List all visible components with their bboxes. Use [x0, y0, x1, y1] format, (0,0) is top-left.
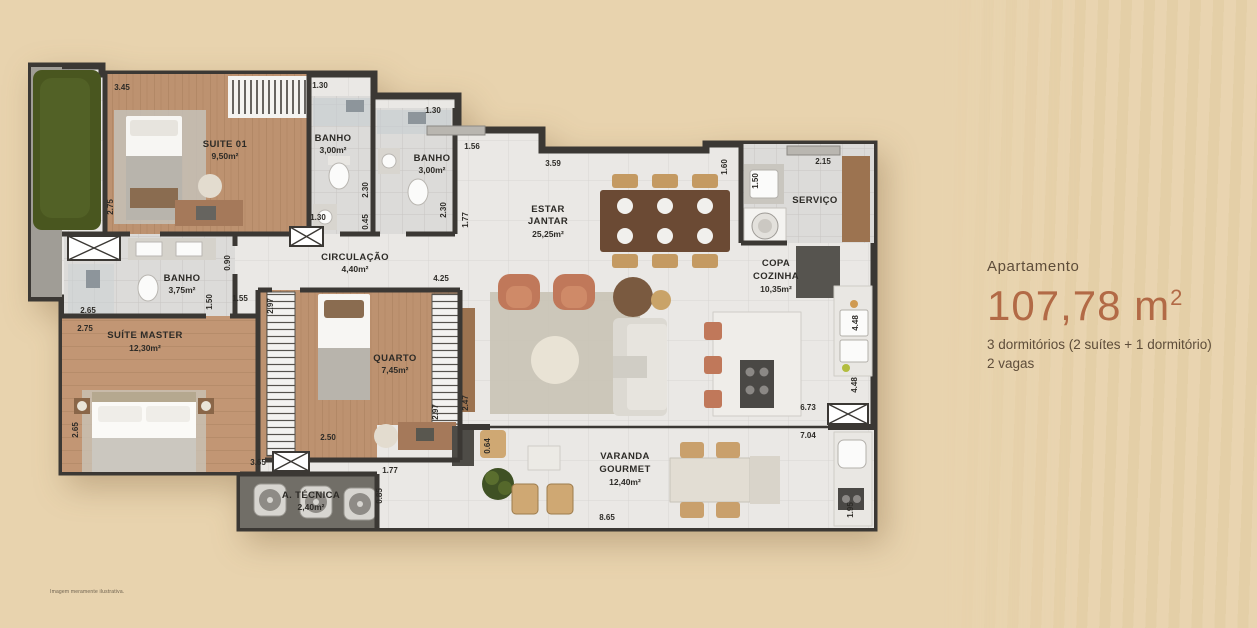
dim: 4.48 [851, 315, 860, 331]
dim: 2.15 [815, 157, 831, 166]
label-varanda-area: 12,40m² [609, 477, 641, 487]
detail-vagas: 2 vagas [987, 354, 1212, 373]
dim: 4.25 [433, 274, 449, 283]
dim: 1.56 [464, 142, 480, 151]
label-atecnica: A. TÉCNICA [282, 490, 340, 501]
label-quarto: QUARTO [373, 353, 416, 364]
suite-master-furniture [74, 390, 214, 472]
label-circulacao: CIRCULAÇÃO [321, 252, 389, 263]
label-banho1: BANHO [315, 133, 352, 144]
label-copa-area: 10,35m² [760, 284, 792, 294]
label-banho-master-area: 3,75m² [169, 285, 196, 295]
shaft-box [68, 236, 120, 260]
label-copa-2: COZINHA [753, 271, 799, 282]
detail-dorms: 3 dormitórios (2 suítes + 1 dormitório) [987, 335, 1212, 354]
dim: 0.85 [375, 488, 384, 504]
shaft-box [828, 404, 868, 424]
label-banho2-area: 3,00m² [419, 165, 446, 175]
dim: 1.55 [232, 294, 248, 303]
entry-threshold [427, 126, 485, 135]
dim: 1.30 [425, 106, 441, 115]
dim: 6.73 [800, 403, 816, 412]
dim: 1.60 [720, 159, 729, 175]
dim: 1.95 [846, 502, 855, 518]
shaft-box [273, 452, 309, 471]
dim: 2.75 [77, 324, 93, 333]
label-atecnica-area: 2,40m² [298, 502, 325, 512]
dim: 2.50 [320, 433, 336, 442]
floor-plan-svg: SUITE 01 9,50m² BANHO 3,00m² BANHO 3,00m… [28, 60, 878, 540]
area-sup: 2 [1170, 285, 1183, 310]
label-estar-1: ESTAR [531, 204, 565, 215]
dim: 1.77 [461, 212, 470, 228]
shaft-box [290, 227, 323, 246]
dim: 0.90 [223, 255, 232, 271]
label-suite01: SUITE 01 [203, 139, 248, 150]
dim: 1.50 [751, 173, 760, 189]
dim: 1.77 [382, 466, 398, 475]
dim: 3.65 [250, 458, 266, 467]
label-varanda-1: VARANDA [600, 451, 650, 462]
label-banho2: BANHO [414, 153, 451, 164]
dim: 8.65 [599, 513, 615, 522]
apartment-label: Apartamento [987, 258, 1212, 275]
dim: 3.45 [114, 83, 130, 92]
floor-plan: SUITE 01 9,50m² BANHO 3,00m² BANHO 3,00m… [28, 60, 878, 540]
dim: 7.04 [800, 431, 816, 440]
disclaimer-text: Imagem meramente ilustrativa. [50, 589, 124, 595]
label-varanda-2: GOURMET [599, 464, 650, 475]
dim: 1.50 [205, 294, 214, 310]
dim: 2.47 [461, 395, 470, 411]
dim: 0.45 [361, 214, 370, 230]
dim: 2.65 [71, 422, 80, 438]
apartment-details: 3 dormitórios (2 suítes + 1 dormitório) … [987, 335, 1212, 373]
dim: 2.30 [361, 182, 370, 198]
area-value: 107,78 m [987, 282, 1170, 329]
servico-threshold [787, 146, 840, 155]
label-suite-master: SUÍTE MASTER [107, 330, 183, 341]
label-copa-1: COPA [762, 258, 790, 269]
dim: 3.59 [545, 159, 561, 168]
info-panel: Apartamento 107,78 m2 3 dormitórios (2 s… [987, 258, 1212, 373]
label-estar-2: JANTAR [528, 216, 568, 227]
apartment-area: 107,78 m2 [987, 275, 1212, 329]
dim: 2.75 [106, 199, 115, 215]
label-circulacao-area: 4,40m² [342, 264, 369, 274]
label-banho-master: BANHO [164, 273, 201, 284]
dim: 2.97 [266, 298, 275, 314]
dim: 0.64 [483, 438, 492, 454]
label-banho1-area: 3,00m² [320, 145, 347, 155]
dim: 2.30 [439, 202, 448, 218]
hedge-highlight [40, 78, 90, 218]
label-suite01-area: 9,50m² [212, 151, 239, 161]
dim: 1.30 [310, 213, 326, 222]
dim: 1.30 [312, 81, 328, 90]
label-suite-master-area: 12,30m² [129, 343, 161, 353]
dim: 4.48 [850, 377, 859, 393]
label-quarto-area: 7,45m² [382, 365, 409, 375]
dim: 2.97 [431, 404, 440, 420]
label-estar-area: 25,25m² [532, 229, 564, 239]
dim: 2.65 [80, 306, 96, 315]
label-servico: SERVIÇO [792, 195, 837, 206]
